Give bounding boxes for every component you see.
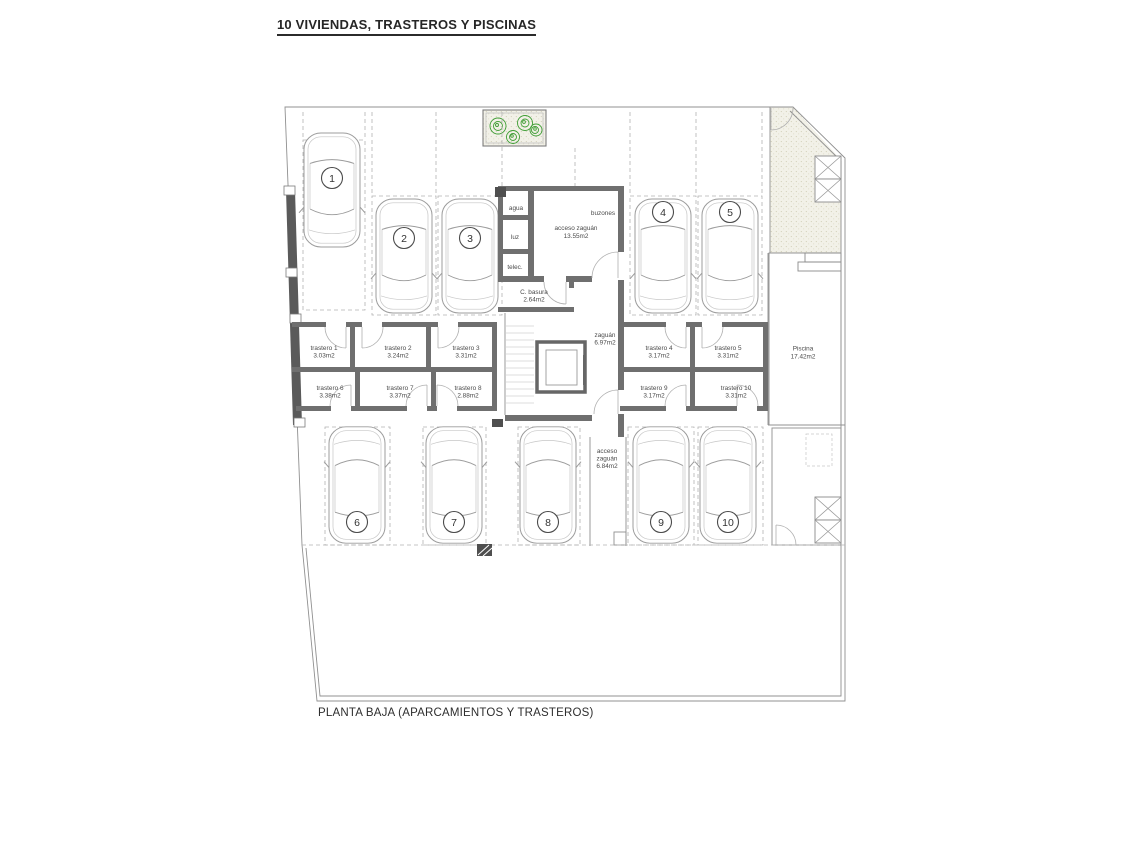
planter-box (483, 110, 546, 146)
trastero-5-label: trastero 5 (715, 345, 742, 352)
svg-text:2: 2 (401, 233, 407, 245)
staircase (506, 326, 534, 403)
trastero-4-label: trastero 4 (646, 345, 673, 352)
svg-text:7: 7 (451, 517, 457, 529)
parking-badge-6: 6 (347, 512, 368, 533)
zaguan-area: 6.97m2 (594, 340, 616, 347)
parking-badge-10: 10 (718, 512, 739, 533)
svg-text:10: 10 (722, 517, 734, 529)
trastero-8-area: 2.88m2 (457, 393, 479, 400)
acceso-zaguan-top-label: acceso zaguán (555, 225, 598, 232)
svg-text:1: 1 (329, 173, 335, 185)
svg-text:4: 4 (660, 207, 666, 219)
parking-badge-7: 7 (444, 512, 465, 533)
parking-badge-9: 9 (651, 512, 672, 533)
acceso-zaguan-top-area: 13.55m2 (564, 233, 589, 240)
trastero-1-label: trastero 1 (311, 345, 338, 352)
trastero-3-area: 3.31m2 (455, 353, 477, 360)
trastero-2-area: 3.24m2 (387, 353, 409, 360)
trastero-9-label: trastero 9 (641, 385, 668, 392)
basura-label: C. basura (520, 289, 548, 296)
parking-badge-5: 5 (720, 202, 741, 223)
trastero-9-area: 3.17m2 (643, 393, 665, 400)
pool-steps (805, 253, 841, 262)
svg-text:9: 9 (658, 517, 664, 529)
telec-label: telec. (507, 264, 522, 271)
trastero-10-area: 3.31m2 (725, 393, 747, 400)
car-1 (299, 133, 365, 247)
trastero-5-area: 3.31m2 (717, 353, 739, 360)
swimming-pool (769, 253, 841, 425)
svg-text:8: 8 (545, 517, 551, 529)
parking-badge-4: 4 (653, 202, 674, 223)
page: 10 VIVIENDAS, TRASTEROS Y PISCINAS (0, 0, 1140, 860)
svg-text:6: 6 (354, 517, 360, 529)
trastero-10-label: trastero 10 (721, 385, 752, 392)
parking-badge-2: 2 (394, 228, 415, 249)
svg-text:3: 3 (467, 233, 473, 245)
trastero-4-area: 3.17m2 (648, 353, 670, 360)
trastero-3-label: trastero 3 (453, 345, 480, 352)
trastero-6-area: 3.38m2 (319, 393, 341, 400)
car-3 (437, 199, 503, 313)
hatched-marker (477, 544, 492, 556)
parking-badge-8: 8 (538, 512, 559, 533)
trastero-6-label: trastero 6 (317, 385, 344, 392)
zaguan-label: zaguán (595, 332, 616, 339)
trastero-2-label: trastero 2 (385, 345, 412, 352)
trastero-7-area: 3.37m2 (389, 393, 411, 400)
luz-label: luz (511, 234, 519, 241)
piscina-area: 17.42m2 (791, 354, 816, 361)
agua-label: agua (509, 205, 524, 212)
parking-badge-3: 3 (460, 228, 481, 249)
plan-caption: PLANTA BAJA (APARCAMIENTOS Y TRASTEROS) (318, 707, 594, 719)
trastero-8-label: trastero 8 (455, 385, 482, 392)
floor-plan: trastero 1 3.03m2 trastero 2 3.24m2 tras… (0, 0, 1140, 860)
svg-text:5: 5 (727, 207, 733, 219)
buzones-label: buzones (591, 210, 615, 217)
trastero-1-area: 3.03m2 (313, 353, 335, 360)
parking-badge-1: 1 (322, 168, 343, 189)
car-2 (371, 199, 437, 313)
acceso-zaguan-bottom-label2: zaguán (597, 456, 618, 463)
acceso-zaguan-bottom-label1: acceso (597, 448, 618, 455)
trastero-7-label: trastero 7 (387, 385, 414, 392)
basura-area: 2.64m2 (523, 297, 545, 304)
elevator-shaft (537, 342, 585, 392)
piscina-label: Piscina (793, 346, 814, 353)
acceso-zaguan-bottom-area: 6.84m2 (596, 463, 618, 470)
